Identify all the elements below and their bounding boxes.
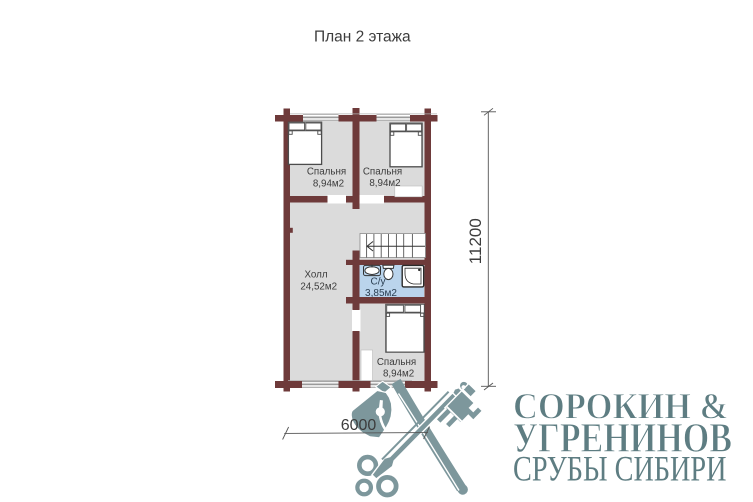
svg-text:Спальня: Спальня (363, 167, 402, 178)
svg-text:8,94м2: 8,94м2 (313, 179, 344, 190)
svg-text:24,52м2: 24,52м2 (300, 281, 337, 292)
svg-text:11200: 11200 (466, 218, 485, 264)
svg-text:СРУБЫ СИБИРИ: СРУБЫ СИБИРИ (513, 449, 727, 489)
svg-text:8,94м2: 8,94м2 (369, 178, 400, 189)
svg-text:3,85м2: 3,85м2 (365, 288, 397, 299)
svg-text:6000: 6000 (341, 417, 377, 434)
svg-text:С/у: С/у (371, 276, 386, 287)
svg-text:Спальня: Спальня (377, 357, 416, 368)
svg-text:8,94м2: 8,94м2 (383, 369, 414, 380)
svg-text:Холл: Холл (304, 269, 327, 280)
svg-text:Спальня: Спальня (307, 167, 346, 178)
svg-text:План 2 этажа: План 2 этажа (314, 29, 411, 46)
